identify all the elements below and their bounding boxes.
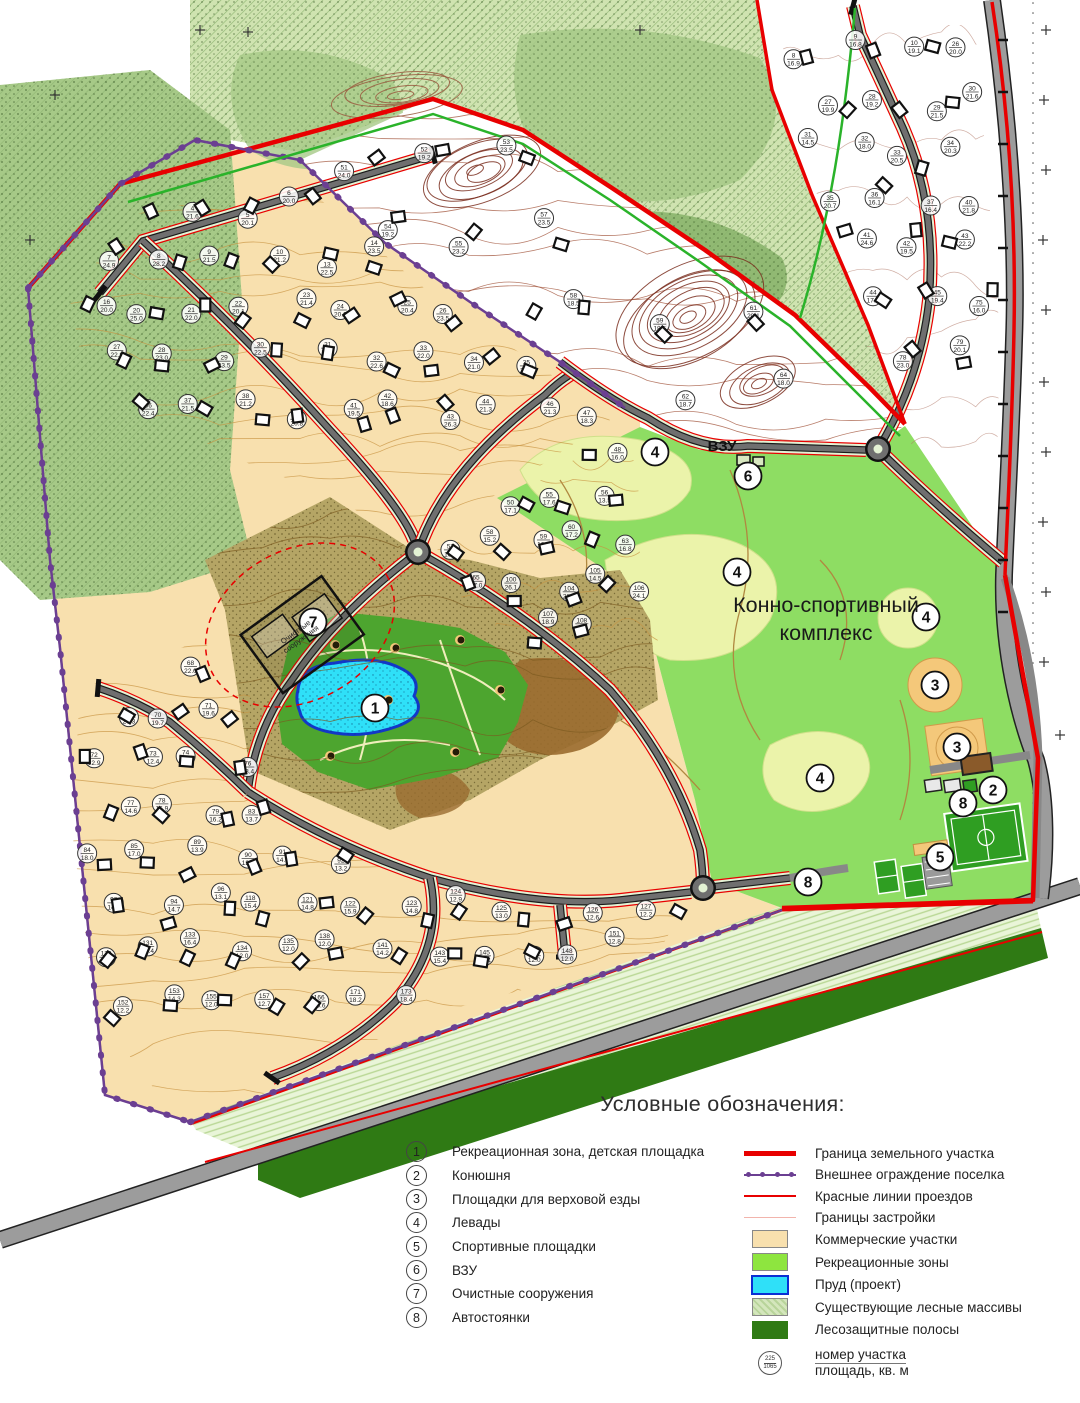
svg-text:157: 157	[259, 993, 270, 1000]
svg-text:104: 104	[564, 585, 575, 592]
parcel-number: 3420.3	[941, 137, 960, 156]
svg-text:70: 70	[154, 712, 162, 719]
legend-item-5: 5Спортивные площадки	[406, 1235, 704, 1259]
parcel-number: 3520.7	[821, 192, 840, 211]
svg-text:28.2: 28.2	[153, 261, 166, 268]
svg-text:8: 8	[959, 796, 968, 813]
zone-marker-8: 8	[795, 869, 822, 896]
parcel-number: 3322.0	[414, 342, 433, 361]
red-line-sample	[738, 1195, 802, 1197]
svg-text:34: 34	[947, 140, 955, 147]
svg-text:13.2: 13.2	[335, 866, 348, 873]
parcel-number: 6218.7	[676, 391, 695, 410]
zone-marker-4: 4	[724, 559, 751, 586]
svg-text:106: 106	[634, 585, 645, 592]
svg-text:24: 24	[337, 304, 345, 311]
svg-text:8: 8	[804, 875, 813, 892]
parcel-number: 7019.7	[148, 709, 167, 728]
svg-text:20.3: 20.3	[944, 148, 957, 155]
zone-marker-2: 2	[980, 777, 1007, 804]
svg-text:20.4: 20.4	[401, 307, 414, 314]
svg-text:79: 79	[956, 339, 964, 346]
svg-text:23.2: 23.2	[452, 248, 465, 255]
svg-text:173: 173	[401, 989, 412, 996]
svg-text:21.3: 21.3	[544, 409, 557, 416]
svg-text:4: 4	[733, 565, 742, 582]
svg-text:29: 29	[933, 105, 941, 112]
svg-text:29: 29	[221, 355, 229, 362]
legend-forest: Существующие лесные массивы	[738, 1296, 1022, 1319]
svg-text:44: 44	[869, 290, 877, 297]
svg-text:100: 100	[505, 577, 516, 584]
parcel-number: 10718.9	[539, 608, 558, 627]
legend-red-lines: Красные линии проездов	[738, 1186, 1022, 1207]
svg-text:155: 155	[206, 994, 217, 1001]
parcel-number: 4816.0	[608, 443, 627, 462]
vzu-label: ВЗУ	[708, 438, 737, 455]
svg-text:25.0: 25.0	[130, 316, 143, 323]
svg-text:63: 63	[622, 538, 630, 545]
svg-text:19.6: 19.6	[202, 710, 215, 717]
svg-text:14.5: 14.5	[801, 140, 814, 147]
svg-text:23.0: 23.0	[897, 363, 910, 370]
svg-text:30: 30	[969, 85, 977, 92]
svg-text:17.1: 17.1	[504, 508, 517, 515]
svg-text:152: 152	[117, 1000, 128, 1007]
equestrian-complex-label-line1: Конно-спортивный	[733, 593, 919, 617]
svg-text:20.7: 20.7	[824, 203, 837, 210]
parcel-number: 6418.0	[774, 369, 793, 388]
zone-marker-6: 6	[735, 463, 762, 490]
svg-text:16: 16	[103, 299, 111, 306]
svg-text:14: 14	[371, 240, 379, 247]
svg-text:72: 72	[90, 752, 98, 759]
parcel-number: 11815.4	[241, 892, 260, 911]
svg-text:50: 50	[507, 500, 515, 507]
svg-text:15.9: 15.9	[344, 909, 357, 916]
svg-text:5: 5	[936, 850, 945, 867]
svg-text:78: 78	[899, 355, 907, 362]
svg-text:126: 126	[587, 906, 598, 913]
svg-text:123: 123	[406, 900, 417, 907]
svg-text:16.0: 16.0	[611, 454, 624, 461]
svg-text:13.1: 13.1	[215, 894, 228, 901]
svg-text:22.5: 22.5	[321, 269, 334, 276]
svg-text:18.4: 18.4	[400, 997, 413, 1004]
parcel-number: 14315.4	[430, 947, 449, 966]
svg-text:21.0: 21.0	[468, 364, 481, 371]
svg-text:23.5: 23.5	[500, 147, 513, 154]
svg-text:15.4: 15.4	[433, 958, 446, 965]
svg-text:12.6: 12.6	[586, 914, 599, 921]
zone-marker-4: 4	[642, 439, 669, 466]
svg-text:28: 28	[158, 347, 166, 354]
parcel-number: 4421.3	[476, 395, 495, 414]
svg-text:58: 58	[570, 293, 578, 300]
legend-number-badge: 1	[406, 1141, 427, 1162]
parcel-number: 3320.5	[887, 146, 906, 165]
parcel-number: 12712.2	[636, 901, 655, 920]
parcel-number: 5323.5	[497, 136, 516, 155]
svg-text:20.0: 20.0	[100, 307, 113, 314]
parcel-number: 5124.0	[335, 162, 354, 181]
svg-text:19.2: 19.2	[866, 101, 879, 108]
svg-text:22: 22	[235, 300, 243, 307]
svg-text:34: 34	[470, 356, 478, 363]
svg-text:12.8: 12.8	[608, 938, 621, 945]
svg-text:73: 73	[149, 750, 157, 757]
svg-text:19.2: 19.2	[381, 232, 394, 239]
parcel-number: 12215.9	[341, 898, 360, 917]
svg-text:45: 45	[934, 290, 942, 297]
svg-text:89: 89	[194, 839, 202, 846]
svg-text:53: 53	[503, 139, 511, 146]
svg-text:18.0: 18.0	[858, 144, 871, 151]
legend-number-badge: 2	[406, 1165, 427, 1186]
svg-text:171: 171	[350, 989, 361, 996]
svg-text:18.0: 18.0	[81, 855, 94, 862]
svg-text:14.8: 14.8	[301, 904, 314, 911]
svg-text:14.2: 14.2	[376, 950, 389, 957]
purple-dotted-line-sample	[738, 1174, 802, 1176]
parcel-number: 3021.6	[963, 82, 982, 101]
equestrian-complex-label-line2: комплекс	[780, 621, 873, 645]
svg-text:24.9: 24.9	[103, 262, 116, 269]
svg-text:18.2: 18.2	[349, 997, 362, 1004]
parcel-number: 14812.0	[558, 945, 577, 964]
svg-text:21.4: 21.4	[300, 300, 313, 307]
green-swatch	[738, 1253, 802, 1271]
svg-text:43: 43	[961, 233, 969, 240]
parcel-number: 12612.6	[583, 903, 602, 922]
svg-text:28: 28	[868, 93, 876, 100]
svg-text:27: 27	[113, 344, 121, 351]
parcel-number: 5523.2	[449, 237, 468, 256]
parcel-number: 9414.7	[164, 896, 183, 915]
svg-text:14.7: 14.7	[168, 907, 181, 914]
svg-text:30: 30	[257, 341, 265, 348]
parcel-number: 7516.0	[970, 297, 989, 316]
svg-text:12.0: 12.0	[205, 1002, 218, 1009]
svg-text:55: 55	[546, 491, 554, 498]
parcel-number: 15112.8	[605, 927, 624, 946]
svg-text:26: 26	[952, 41, 960, 48]
zone-marker-8: 8	[950, 790, 977, 817]
parcel-number: 828.2	[149, 250, 168, 269]
svg-text:12.0: 12.0	[318, 941, 331, 948]
parcel-number: 1423.5	[365, 237, 384, 256]
parcel-number: 8913.9	[188, 836, 207, 855]
legend-item-6: 6ВЗУ	[406, 1258, 704, 1282]
svg-text:71: 71	[205, 702, 213, 709]
svg-text:13.7: 13.7	[245, 816, 258, 823]
svg-text:79: 79	[212, 809, 220, 816]
svg-text:14.8: 14.8	[405, 908, 418, 915]
svg-text:16.2: 16.2	[209, 817, 222, 824]
svg-text:10: 10	[276, 249, 284, 256]
svg-text:19.5: 19.5	[347, 410, 360, 417]
svg-text:22.5: 22.5	[254, 349, 267, 356]
zone-marker-1: 1	[362, 695, 389, 722]
legend-item-8: 8Автостоянки	[406, 1306, 704, 1330]
svg-text:118: 118	[245, 895, 256, 902]
svg-text:9: 9	[854, 34, 858, 41]
svg-text:18.3: 18.3	[580, 418, 593, 425]
svg-text:105: 105	[590, 567, 601, 574]
parcel-number: 4326.3	[441, 411, 460, 430]
legend-title: Условные обозначения:	[490, 1092, 955, 1117]
svg-text:51: 51	[340, 165, 348, 172]
svg-text:96: 96	[217, 886, 225, 893]
svg-text:84: 84	[84, 847, 92, 854]
zone-marker-3: 3	[922, 672, 949, 699]
svg-text:38: 38	[242, 393, 250, 400]
legend-building-limit: Границы застройки	[738, 1207, 1022, 1228]
parcel-number: 2620.0	[946, 38, 965, 57]
svg-text:26: 26	[439, 307, 447, 314]
svg-text:16.9: 16.9	[787, 61, 800, 68]
svg-text:62: 62	[682, 394, 690, 401]
svg-text:148: 148	[562, 948, 573, 955]
svg-text:35: 35	[826, 195, 834, 202]
svg-text:68: 68	[187, 660, 195, 667]
svg-text:19.9: 19.9	[822, 107, 835, 114]
svg-text:12.7: 12.7	[258, 1001, 271, 1008]
svg-text:1: 1	[371, 701, 380, 718]
svg-text:17.2: 17.2	[565, 532, 578, 539]
parcel-number: 4718.3	[577, 407, 596, 426]
parcel-number: 4119.5	[344, 399, 363, 418]
svg-text:85: 85	[131, 843, 139, 850]
svg-text:121: 121	[302, 896, 313, 903]
parcel-number: 2819.2	[862, 90, 881, 109]
svg-text:6: 6	[287, 190, 291, 197]
parcel-number: 1019.1	[905, 37, 924, 56]
parcel-number: 3222.6	[367, 352, 386, 371]
svg-text:19.5: 19.5	[900, 249, 913, 256]
parcel-number: 3421.0	[464, 353, 483, 372]
svg-text:19.7: 19.7	[151, 720, 164, 727]
svg-text:21.5: 21.5	[181, 405, 194, 412]
parcel-number: 2122.0	[182, 304, 201, 323]
parcel-number: 6017.2	[562, 521, 581, 540]
svg-text:40: 40	[965, 200, 973, 207]
svg-text:20: 20	[133, 308, 141, 315]
parcel-number: 8517.0	[125, 840, 144, 859]
legend-symbol-list: Граница земельного участка Внешнее ограж…	[738, 1143, 1022, 1378]
svg-text:16.8: 16.8	[619, 546, 632, 553]
svg-text:125: 125	[496, 905, 507, 912]
svg-text:36: 36	[871, 191, 879, 198]
parcel-number: 12314.8	[402, 897, 421, 916]
svg-text:16.4: 16.4	[184, 940, 197, 947]
svg-text:37: 37	[927, 199, 935, 206]
parcel-number: 1322.5	[317, 258, 336, 277]
svg-text:14.6: 14.6	[124, 808, 137, 815]
legend-boundary-line: Граница земельного участка	[738, 1143, 1022, 1164]
legend-number-badge: 8	[406, 1307, 427, 1328]
svg-text:3: 3	[953, 740, 962, 757]
parcel-number: 13512.0	[279, 935, 298, 954]
parcel-number: 2921.5	[927, 102, 946, 121]
parcel-number: 2719.9	[818, 96, 837, 115]
svg-text:42: 42	[384, 393, 392, 400]
zone-marker-4: 4	[807, 765, 834, 792]
svg-text:5: 5	[246, 212, 250, 219]
parcel-number: 13812.0	[315, 930, 334, 949]
svg-text:21: 21	[188, 307, 196, 314]
parcel-number: 12114.8	[298, 893, 317, 912]
parcel-number: 10026.1	[501, 574, 520, 593]
parcel-number: 4124.6	[857, 229, 876, 248]
svg-text:12.0: 12.0	[282, 946, 295, 953]
parcel-number: 8418.0	[78, 844, 97, 863]
parcel-number: 4021.8	[959, 197, 978, 216]
svg-text:124: 124	[450, 889, 461, 896]
svg-text:20.5: 20.5	[891, 157, 904, 164]
parcel-number: 10514.5	[586, 564, 605, 583]
svg-text:6: 6	[744, 469, 753, 486]
parcel-number: 3114.5	[798, 129, 817, 148]
svg-text:94: 94	[170, 899, 178, 906]
svg-text:133: 133	[185, 932, 196, 939]
svg-text:55: 55	[455, 240, 463, 247]
svg-text:22.0: 22.0	[185, 315, 198, 322]
parcel-number: 620.0	[279, 187, 298, 206]
svg-text:61: 61	[750, 305, 758, 312]
legend-parcel-number-symbol: 2251065 номер участкаплощадь, кв. м	[738, 1348, 1022, 1378]
svg-text:13.0: 13.0	[495, 913, 508, 920]
svg-text:127: 127	[640, 904, 651, 911]
svg-text:12.0: 12.0	[561, 956, 574, 963]
legend-numbered-list: 1Рекреационная зона, детская площадка 2К…	[406, 1140, 704, 1330]
svg-text:20.0: 20.0	[949, 49, 962, 56]
svg-text:4: 4	[651, 445, 660, 462]
svg-text:21.5: 21.5	[931, 113, 944, 120]
svg-text:20.0: 20.0	[283, 198, 296, 205]
parcel-number: 17318.4	[397, 986, 416, 1005]
svg-text:122: 122	[345, 901, 356, 908]
svg-text:8: 8	[792, 53, 796, 60]
svg-text:21.2: 21.2	[239, 401, 252, 408]
legend-item-7: 7Очистные сооружения	[406, 1282, 704, 1306]
svg-text:107: 107	[543, 611, 554, 618]
svg-text:17.0: 17.0	[128, 851, 141, 858]
legend-item-3: 3Площадки для верховой езды	[406, 1187, 704, 1211]
legend-item-1: 1Рекреационная зона, детская площадка	[406, 1140, 704, 1164]
svg-text:18.0: 18.0	[777, 380, 790, 387]
parcel-number: 1620.0	[97, 296, 116, 315]
parcel-number: 6316.8	[616, 535, 635, 554]
svg-text:46: 46	[546, 401, 554, 408]
parcel-number: 3821.2	[236, 390, 255, 409]
parcel-number: 921.5	[200, 246, 219, 265]
svg-text:26.1: 26.1	[505, 585, 518, 592]
svg-text:75: 75	[975, 300, 983, 307]
svg-text:33: 33	[893, 149, 901, 156]
svg-text:21.6: 21.6	[966, 93, 979, 100]
svg-text:4: 4	[816, 771, 825, 788]
parcel-number: 3022.5	[251, 338, 270, 357]
svg-text:23.5: 23.5	[538, 220, 551, 227]
legend-number-badge: 4	[406, 1212, 427, 1233]
svg-text:14.5: 14.5	[589, 575, 602, 582]
svg-text:21.8: 21.8	[962, 208, 975, 215]
svg-text:41: 41	[863, 232, 871, 239]
site-plan-page: 421.6520.1620.0724.9828.2921.51021.21322…	[0, 0, 1080, 1403]
parcel-number: 15212.2	[113, 997, 132, 1016]
zone-marker-3: 3	[944, 734, 971, 761]
darkgreen-swatch	[738, 1321, 802, 1339]
parcel-number: 9613.1	[211, 883, 230, 902]
svg-text:22.0: 22.0	[417, 353, 430, 360]
parcel-number: 3616.1	[865, 188, 884, 207]
parcel-number: 4322.2	[955, 230, 974, 249]
thick-red-line-sample	[738, 1151, 802, 1156]
svg-text:21.3: 21.3	[479, 406, 492, 413]
svg-text:12.2: 12.2	[640, 912, 653, 919]
svg-text:56: 56	[601, 489, 609, 496]
parcel-number: 12412.9	[446, 886, 465, 905]
parcel-number: 7920.1	[950, 336, 969, 355]
tan-swatch	[738, 1230, 802, 1248]
parcel-number: 3716.4	[921, 196, 940, 215]
svg-text:16.4: 16.4	[924, 207, 937, 214]
svg-text:138: 138	[319, 933, 330, 940]
svg-text:16.8: 16.8	[849, 42, 862, 49]
svg-text:78: 78	[158, 797, 166, 804]
svg-text:135: 135	[283, 938, 294, 945]
svg-text:16.1: 16.1	[868, 199, 881, 206]
legend-commercial: Коммерческие участки	[738, 1228, 1022, 1251]
legend-number-badge: 5	[406, 1236, 427, 1257]
parcel-number: 12513.0	[492, 902, 511, 921]
legend-item-4: 4Левады	[406, 1211, 704, 1235]
legend-recreation: Рекреационные зоны	[738, 1251, 1022, 1274]
svg-text:13: 13	[323, 261, 331, 268]
svg-text:83: 83	[248, 808, 256, 815]
svg-text:8: 8	[157, 253, 161, 260]
parcel-number: 5219.2	[415, 144, 434, 163]
parcel-number: 4219.5	[897, 238, 916, 257]
svg-text:151: 151	[609, 930, 620, 937]
svg-text:44: 44	[482, 398, 490, 405]
svg-text:32: 32	[373, 355, 381, 362]
svg-text:19.2: 19.2	[418, 155, 431, 162]
parcel-number: 13316.4	[180, 929, 199, 948]
parcel-number: 5723.5	[535, 209, 554, 228]
parcel-number: 3218.0	[855, 133, 874, 152]
svg-text:19.1: 19.1	[908, 48, 921, 55]
svg-text:58: 58	[486, 529, 494, 536]
svg-text:52: 52	[421, 147, 429, 154]
svg-text:12.4: 12.4	[147, 758, 160, 765]
svg-text:20.1: 20.1	[953, 347, 966, 354]
svg-text:26.3: 26.3	[444, 422, 457, 429]
svg-text:77: 77	[127, 800, 135, 807]
parcel-number: 2321.4	[297, 289, 316, 308]
svg-text:153: 153	[169, 988, 180, 995]
parcel-number: 17118.2	[346, 986, 365, 1005]
svg-text:9: 9	[207, 249, 211, 256]
svg-text:57: 57	[540, 212, 548, 219]
svg-text:22.4: 22.4	[142, 411, 155, 418]
svg-text:21.5: 21.5	[203, 257, 216, 264]
svg-text:43: 43	[447, 414, 455, 421]
svg-text:19.4: 19.4	[931, 298, 944, 305]
svg-text:24.0: 24.0	[338, 173, 351, 180]
svg-text:134: 134	[237, 945, 248, 952]
